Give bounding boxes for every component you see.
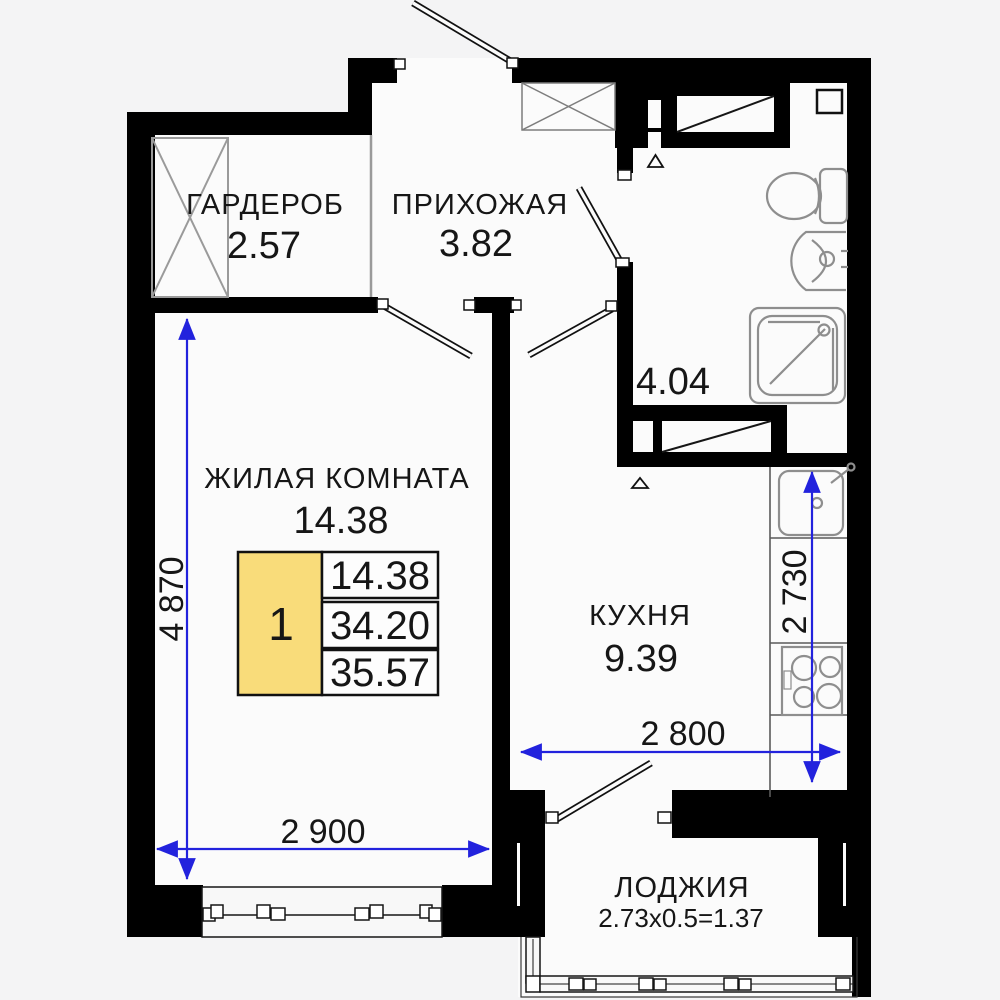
wall-central-cap bbox=[474, 297, 514, 313]
wall-central bbox=[492, 313, 510, 790]
wall-loggia-right-lower bbox=[852, 937, 871, 997]
dim-text-living-height: 4 870 bbox=[153, 556, 191, 641]
vent-shaft-diagonal-bottom bbox=[662, 421, 771, 452]
wall-joint-line-right bbox=[843, 843, 846, 906]
wall-bottom-left bbox=[127, 885, 203, 937]
duct-notch bbox=[633, 421, 653, 452]
room-label-hallway: ПРИХОЖАЯ bbox=[392, 189, 568, 221]
room-label-living: ЖИЛАЯ КОМНАТА bbox=[204, 463, 469, 495]
wall-wardrobe-bottom bbox=[127, 297, 378, 313]
wall-top-right bbox=[512, 58, 871, 83]
dim-text-kitchen-width: 2 800 bbox=[640, 715, 725, 753]
wall-right bbox=[847, 58, 871, 840]
dim-text-living-width: 2 900 bbox=[280, 813, 365, 851]
duct-slot-upper bbox=[648, 100, 661, 128]
wall-top-left bbox=[127, 112, 372, 135]
wall-loggia-top bbox=[672, 790, 847, 838]
living-room-window bbox=[202, 887, 442, 937]
wall-joint-line-left bbox=[517, 843, 520, 906]
vent-shaft-crossed bbox=[522, 83, 615, 130]
legend-living-area: 14.38 bbox=[330, 554, 430, 598]
duct-slot-lower bbox=[648, 132, 661, 148]
room-label-kitchen: КУХНЯ bbox=[589, 600, 691, 632]
wall-bath-bottom bbox=[617, 405, 787, 420]
room-area-hallway: 3.82 bbox=[439, 223, 513, 265]
room-label-wardrobe: ГАРДЕРОБ bbox=[186, 189, 344, 221]
room-area-kitchen: 9.39 bbox=[604, 638, 678, 680]
floor-plan-page: 4 870 2 900 2 800 2 730 ГАРДЕРОБ 2.57 ПР… bbox=[0, 0, 1000, 1000]
room-area-bathroom: 4.04 bbox=[636, 361, 710, 403]
wall-top-entry-left bbox=[348, 58, 397, 83]
vent-shaft-diagonal-top bbox=[677, 96, 774, 132]
apartment-legend: 1 14.38 34.20 35.57 bbox=[238, 552, 438, 695]
wall-bottom-mid bbox=[442, 885, 494, 937]
wall-kitchen-top bbox=[617, 453, 847, 467]
vent-box-icon bbox=[817, 90, 842, 113]
legend-total-area: 35.57 bbox=[330, 651, 430, 695]
room-area-wardrobe: 2.57 bbox=[227, 225, 301, 267]
legend-unit-number: 1 bbox=[268, 598, 294, 650]
room-area-loggia: 2.73x0.5=1.37 bbox=[598, 903, 764, 933]
dim-text-kitchen-height: 2 730 bbox=[776, 549, 814, 634]
legend-apartment-area: 34.20 bbox=[330, 604, 430, 648]
room-area-living: 14.38 bbox=[293, 500, 388, 542]
room-label-loggia: ЛОДЖИЯ bbox=[614, 872, 749, 904]
floor-plan-drawing: 4 870 2 900 2 800 2 730 ГАРДЕРОБ 2.57 ПР… bbox=[0, 0, 1000, 1000]
wall-left bbox=[127, 112, 155, 937]
